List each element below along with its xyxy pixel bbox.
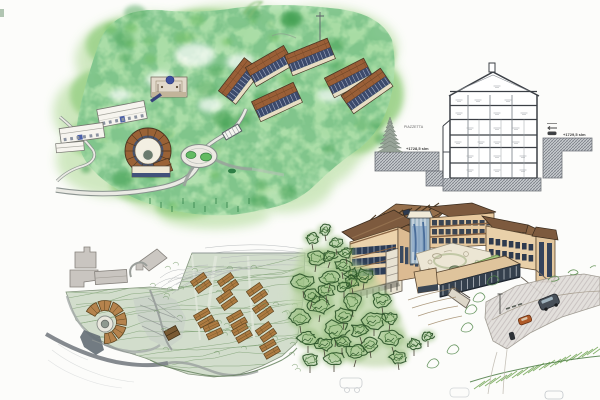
svg-text:PIAZZETTA: PIAZZETTA bbox=[404, 125, 424, 129]
svg-text:+1728,5 slm: +1728,5 slm bbox=[406, 146, 429, 151]
svg-text:+1729,5 slm: +1729,5 slm bbox=[563, 132, 586, 137]
